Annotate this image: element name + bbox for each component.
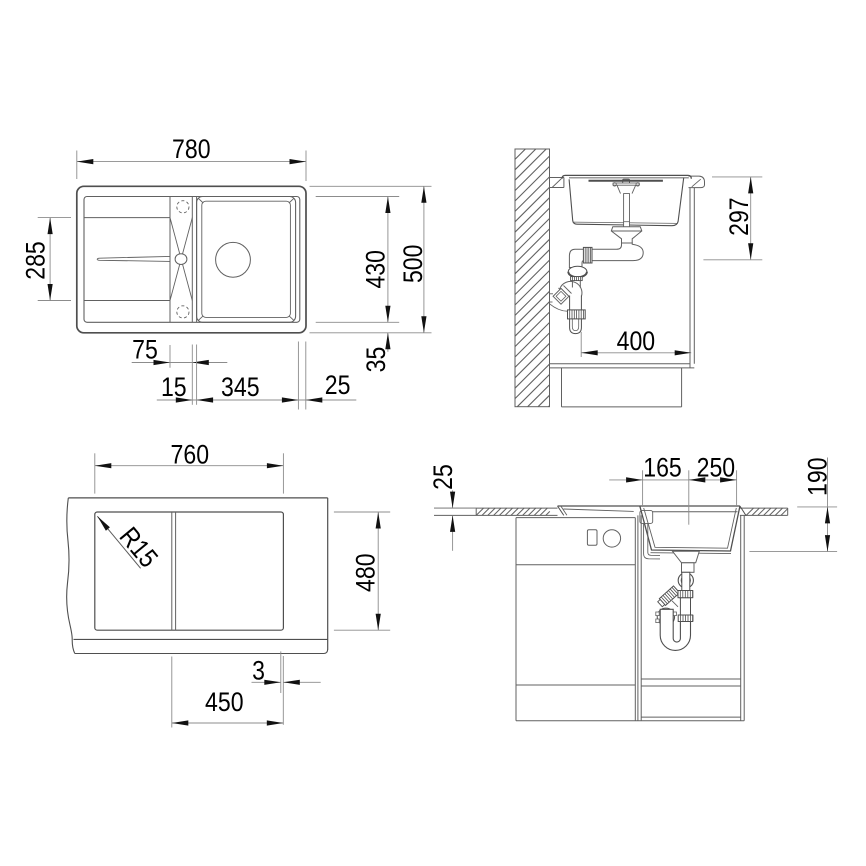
- svg-text:250: 250: [697, 453, 736, 483]
- svg-text:35: 35: [362, 347, 392, 373]
- svg-text:430: 430: [361, 250, 391, 289]
- svg-text:190: 190: [803, 457, 833, 496]
- svg-text:25: 25: [428, 464, 458, 490]
- svg-text:165: 165: [643, 453, 682, 483]
- svg-text:760: 760: [171, 440, 210, 470]
- svg-text:400: 400: [617, 326, 656, 356]
- svg-text:3: 3: [252, 656, 265, 686]
- svg-text:780: 780: [172, 135, 211, 165]
- svg-text:480: 480: [351, 553, 381, 592]
- svg-text:75: 75: [132, 335, 158, 365]
- svg-text:25: 25: [325, 370, 351, 400]
- svg-text:500: 500: [399, 245, 429, 284]
- svg-text:15: 15: [161, 373, 187, 403]
- svg-text:297: 297: [724, 197, 754, 236]
- svg-text:450: 450: [205, 687, 244, 717]
- svg-text:345: 345: [221, 373, 260, 403]
- svg-text:285: 285: [21, 241, 51, 280]
